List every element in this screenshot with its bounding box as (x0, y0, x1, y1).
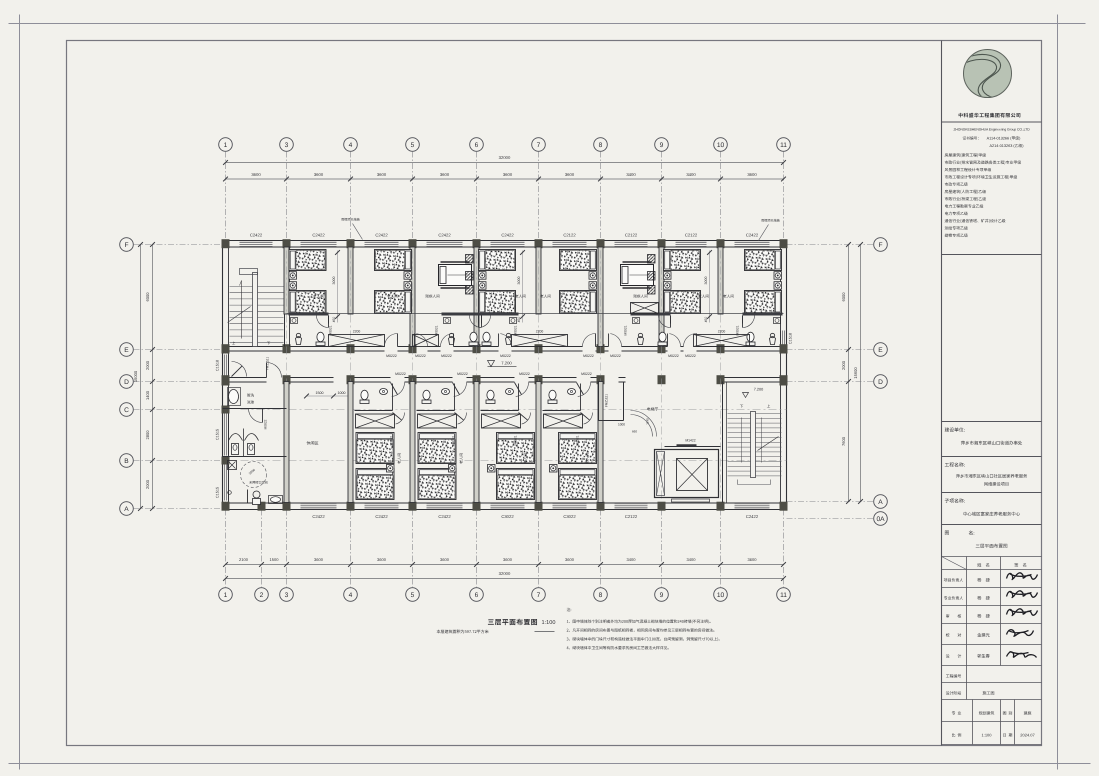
svg-text:3600: 3600 (503, 172, 513, 177)
svg-text:15000: 15000 (133, 370, 138, 382)
svg-text:F: F (124, 242, 128, 249)
svg-text:6000: 6000 (841, 292, 846, 302)
svg-text:3: 3 (285, 142, 289, 149)
svg-text:D: D (124, 379, 129, 386)
svg-text:3600: 3600 (314, 172, 324, 177)
svg-text:3600: 3600 (503, 557, 513, 562)
svg-text:450: 450 (517, 317, 521, 323)
svg-text:上: 上 (232, 342, 236, 346)
svg-text:M1422: M1422 (685, 439, 695, 443)
svg-text:M0222: M0222 (610, 354, 621, 358)
svg-text:3000: 3000 (332, 277, 336, 285)
svg-text:ZHONGKESHENGHUA Engineering Gr: ZHONGKESHENGHUA Engineering Group CO.,LT… (953, 127, 1030, 131)
svg-text:M0222: M0222 (500, 354, 511, 358)
svg-text:9: 9 (660, 592, 664, 599)
svg-text:C2122: C2122 (625, 514, 638, 519)
svg-text:10: 10 (717, 142, 725, 149)
svg-text:M0222: M0222 (668, 354, 679, 358)
svg-text:10: 10 (717, 592, 725, 599)
svg-text:C2422: C2422 (312, 233, 325, 238)
svg-text:1400: 1400 (145, 390, 150, 400)
svg-text:M0921: M0921 (576, 435, 580, 445)
svg-text:M0921: M0921 (736, 325, 740, 335)
svg-text:C2422: C2422 (250, 233, 263, 238)
svg-text:C2422: C2422 (375, 514, 388, 519)
svg-text:4: 4 (349, 592, 353, 599)
svg-text:M0222: M0222 (583, 354, 594, 358)
svg-text:2: 2 (260, 592, 264, 599)
svg-text:3000: 3000 (704, 277, 708, 285)
svg-text:C1515: C1515 (216, 487, 220, 498)
svg-text:E: E (878, 347, 883, 354)
svg-text:1500: 1500 (270, 557, 280, 562)
svg-text:C3022: C3022 (501, 514, 514, 519)
svg-text:450: 450 (704, 317, 708, 323)
svg-text:M0921: M0921 (624, 325, 628, 335)
svg-text:C1518: C1518 (789, 333, 793, 344)
svg-text:C2422: C2422 (312, 514, 325, 519)
svg-text:3: 3 (285, 592, 289, 599)
svg-text:M0222: M0222 (581, 372, 592, 376)
svg-text:M0222: M0222 (457, 372, 468, 376)
svg-text:660: 660 (632, 430, 637, 434)
svg-text:C2422: C2422 (746, 233, 759, 238)
svg-text:7: 7 (537, 142, 541, 149)
svg-text:32000: 32000 (499, 155, 511, 160)
svg-text:1140: 1140 (646, 418, 650, 425)
svg-text:1: 1 (224, 592, 228, 599)
svg-text:5: 5 (411, 142, 415, 149)
svg-text:8: 8 (599, 592, 603, 599)
svg-text:M0921: M0921 (435, 325, 439, 335)
svg-text:2100: 2100 (239, 557, 249, 562)
svg-text:8: 8 (599, 142, 603, 149)
svg-text:C3022: C3022 (563, 514, 576, 519)
svg-text:3600: 3600 (747, 172, 757, 177)
svg-text:C2422: C2422 (501, 233, 514, 238)
svg-text:C2422: C2422 (438, 514, 451, 519)
svg-text:F: F (878, 242, 882, 249)
svg-text:下: 下 (740, 405, 744, 409)
svg-text:1: 1 (224, 142, 228, 149)
svg-text:9: 9 (660, 142, 664, 149)
svg-text:3600: 3600 (377, 172, 387, 177)
svg-text:C2422: C2422 (746, 514, 759, 519)
svg-text:3600: 3600 (565, 557, 575, 562)
svg-text:3600: 3600 (251, 172, 261, 177)
svg-text:2000: 2000 (145, 479, 150, 489)
svg-text:M0222: M0222 (395, 372, 406, 376)
svg-text:C2122: C2122 (685, 233, 698, 238)
svg-text:0A: 0A (876, 516, 885, 523)
svg-text:32000: 32000 (499, 571, 511, 576)
svg-text:A114-013266 (甲级): A114-013266 (甲级) (987, 136, 1021, 141)
svg-text:B: B (124, 458, 129, 465)
svg-text:11: 11 (780, 142, 787, 149)
svg-text:15600: 15600 (853, 367, 858, 379)
svg-text:2000: 2000 (145, 360, 150, 370)
svg-text:3400: 3400 (626, 172, 636, 177)
svg-text:1000: 1000 (618, 423, 625, 427)
svg-text:3400: 3400 (686, 172, 696, 177)
svg-text:450: 450 (332, 317, 336, 323)
svg-text:2200: 2200 (353, 330, 361, 334)
svg-text:上: 上 (767, 405, 771, 409)
svg-text:3000: 3000 (517, 277, 521, 285)
svg-text:M0222: M0222 (685, 354, 696, 358)
svg-text:M0222: M0222 (386, 354, 397, 358)
svg-text:M0222: M0222 (441, 354, 452, 358)
svg-text:6: 6 (475, 142, 479, 149)
svg-text:11: 11 (780, 592, 787, 599)
svg-text:M0921: M0921 (514, 435, 518, 445)
svg-text:M0822: M0822 (264, 419, 268, 429)
svg-text:3600: 3600 (440, 172, 450, 177)
svg-text:1:100: 1:100 (981, 733, 992, 738)
svg-text:A: A (878, 499, 883, 506)
svg-text:3600: 3600 (748, 557, 758, 562)
svg-text:下: 下 (267, 342, 271, 346)
svg-text:3600: 3600 (440, 557, 450, 562)
svg-text:7: 7 (537, 592, 541, 599)
svg-text:7.200: 7.200 (754, 388, 764, 392)
svg-text:5: 5 (411, 592, 415, 599)
svg-text:7600: 7600 (841, 436, 846, 446)
svg-text:1:100: 1:100 (542, 620, 556, 626)
svg-text:C2422: C2422 (438, 233, 451, 238)
svg-text:D: D (878, 379, 883, 386)
svg-text:C2122: C2122 (563, 233, 576, 238)
svg-text:M0921: M0921 (514, 325, 518, 335)
svg-text:M0222: M0222 (519, 372, 530, 376)
svg-text:7.200: 7.200 (501, 361, 512, 366)
svg-text:A214-013263 (乙级): A214-013263 (乙级) (990, 143, 1025, 148)
svg-text:M0921: M0921 (390, 435, 394, 445)
svg-text:M0222: M0222 (415, 354, 426, 358)
svg-text:M0921: M0921 (329, 325, 333, 335)
svg-text:M0921: M0921 (452, 435, 456, 445)
svg-text:2024.07: 2024.07 (1020, 733, 1035, 738)
svg-text:C2122: C2122 (625, 233, 638, 238)
svg-text:6: 6 (475, 592, 479, 599)
svg-text:2200: 2200 (718, 330, 726, 334)
svg-text:3400: 3400 (627, 557, 637, 562)
svg-text:C2422: C2422 (375, 233, 388, 238)
svg-text:6000: 6000 (145, 292, 150, 302)
svg-text:2200: 2200 (536, 330, 544, 334)
svg-text:1000: 1000 (338, 391, 346, 395)
svg-text:E: E (124, 347, 129, 354)
svg-text:C1515: C1515 (216, 429, 220, 440)
svg-text:2800: 2800 (145, 430, 150, 440)
svg-text:3600: 3600 (314, 557, 324, 562)
svg-text:C: C (124, 407, 129, 414)
svg-text:4: 4 (349, 142, 353, 149)
svg-text:2000: 2000 (841, 360, 846, 370)
svg-text:C1518: C1518 (216, 360, 220, 371)
svg-text:3400: 3400 (687, 557, 697, 562)
svg-text:1500: 1500 (316, 391, 324, 395)
svg-text:3600: 3600 (565, 172, 575, 177)
svg-text:A: A (124, 506, 129, 513)
svg-text:3600: 3600 (377, 557, 387, 562)
